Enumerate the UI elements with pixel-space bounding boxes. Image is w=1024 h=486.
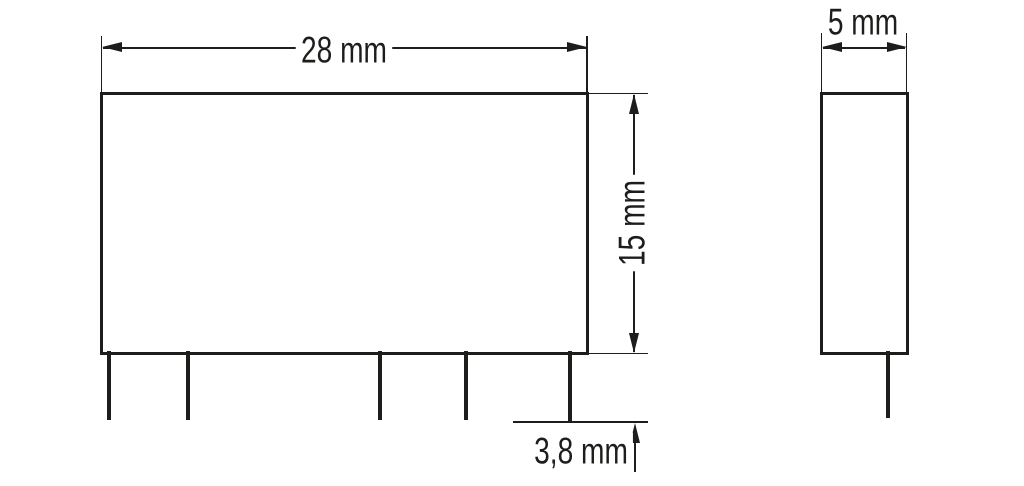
dimension-drawing: 28 mm 15 mm 3,8 mm 5 mm xyxy=(0,0,1024,486)
front-pin-1 xyxy=(107,351,111,420)
arrowhead-28mm-left-icon xyxy=(102,42,122,52)
dimension-baseline-38mm xyxy=(513,421,648,423)
dimension-label-width: 28 mm xyxy=(296,32,393,71)
front-pin-4 xyxy=(464,351,468,420)
front-view-body xyxy=(100,92,589,355)
dimension-label-depth: 5 mm xyxy=(823,4,904,43)
side-view-body xyxy=(820,92,909,355)
arrowhead-15mm-up-icon xyxy=(629,94,639,114)
arrowhead-5mm-left-icon xyxy=(822,42,842,52)
extension-line-15mm-bottom xyxy=(589,353,648,355)
dimension-label-height: 15 mm xyxy=(614,175,653,272)
arrowhead-28mm-right-icon xyxy=(567,42,587,52)
front-pin-5 xyxy=(568,351,572,422)
side-pin xyxy=(886,351,890,418)
extension-line-15mm-top xyxy=(589,93,648,95)
front-pin-2 xyxy=(186,351,190,420)
arrowhead-5mm-right-icon xyxy=(887,42,907,52)
arrowhead-15mm-down-icon xyxy=(629,333,639,353)
dimension-stem-38mm xyxy=(634,440,636,472)
dimension-label-pin-protrusion: 3,8 mm xyxy=(529,433,633,472)
front-pin-3 xyxy=(378,351,382,420)
